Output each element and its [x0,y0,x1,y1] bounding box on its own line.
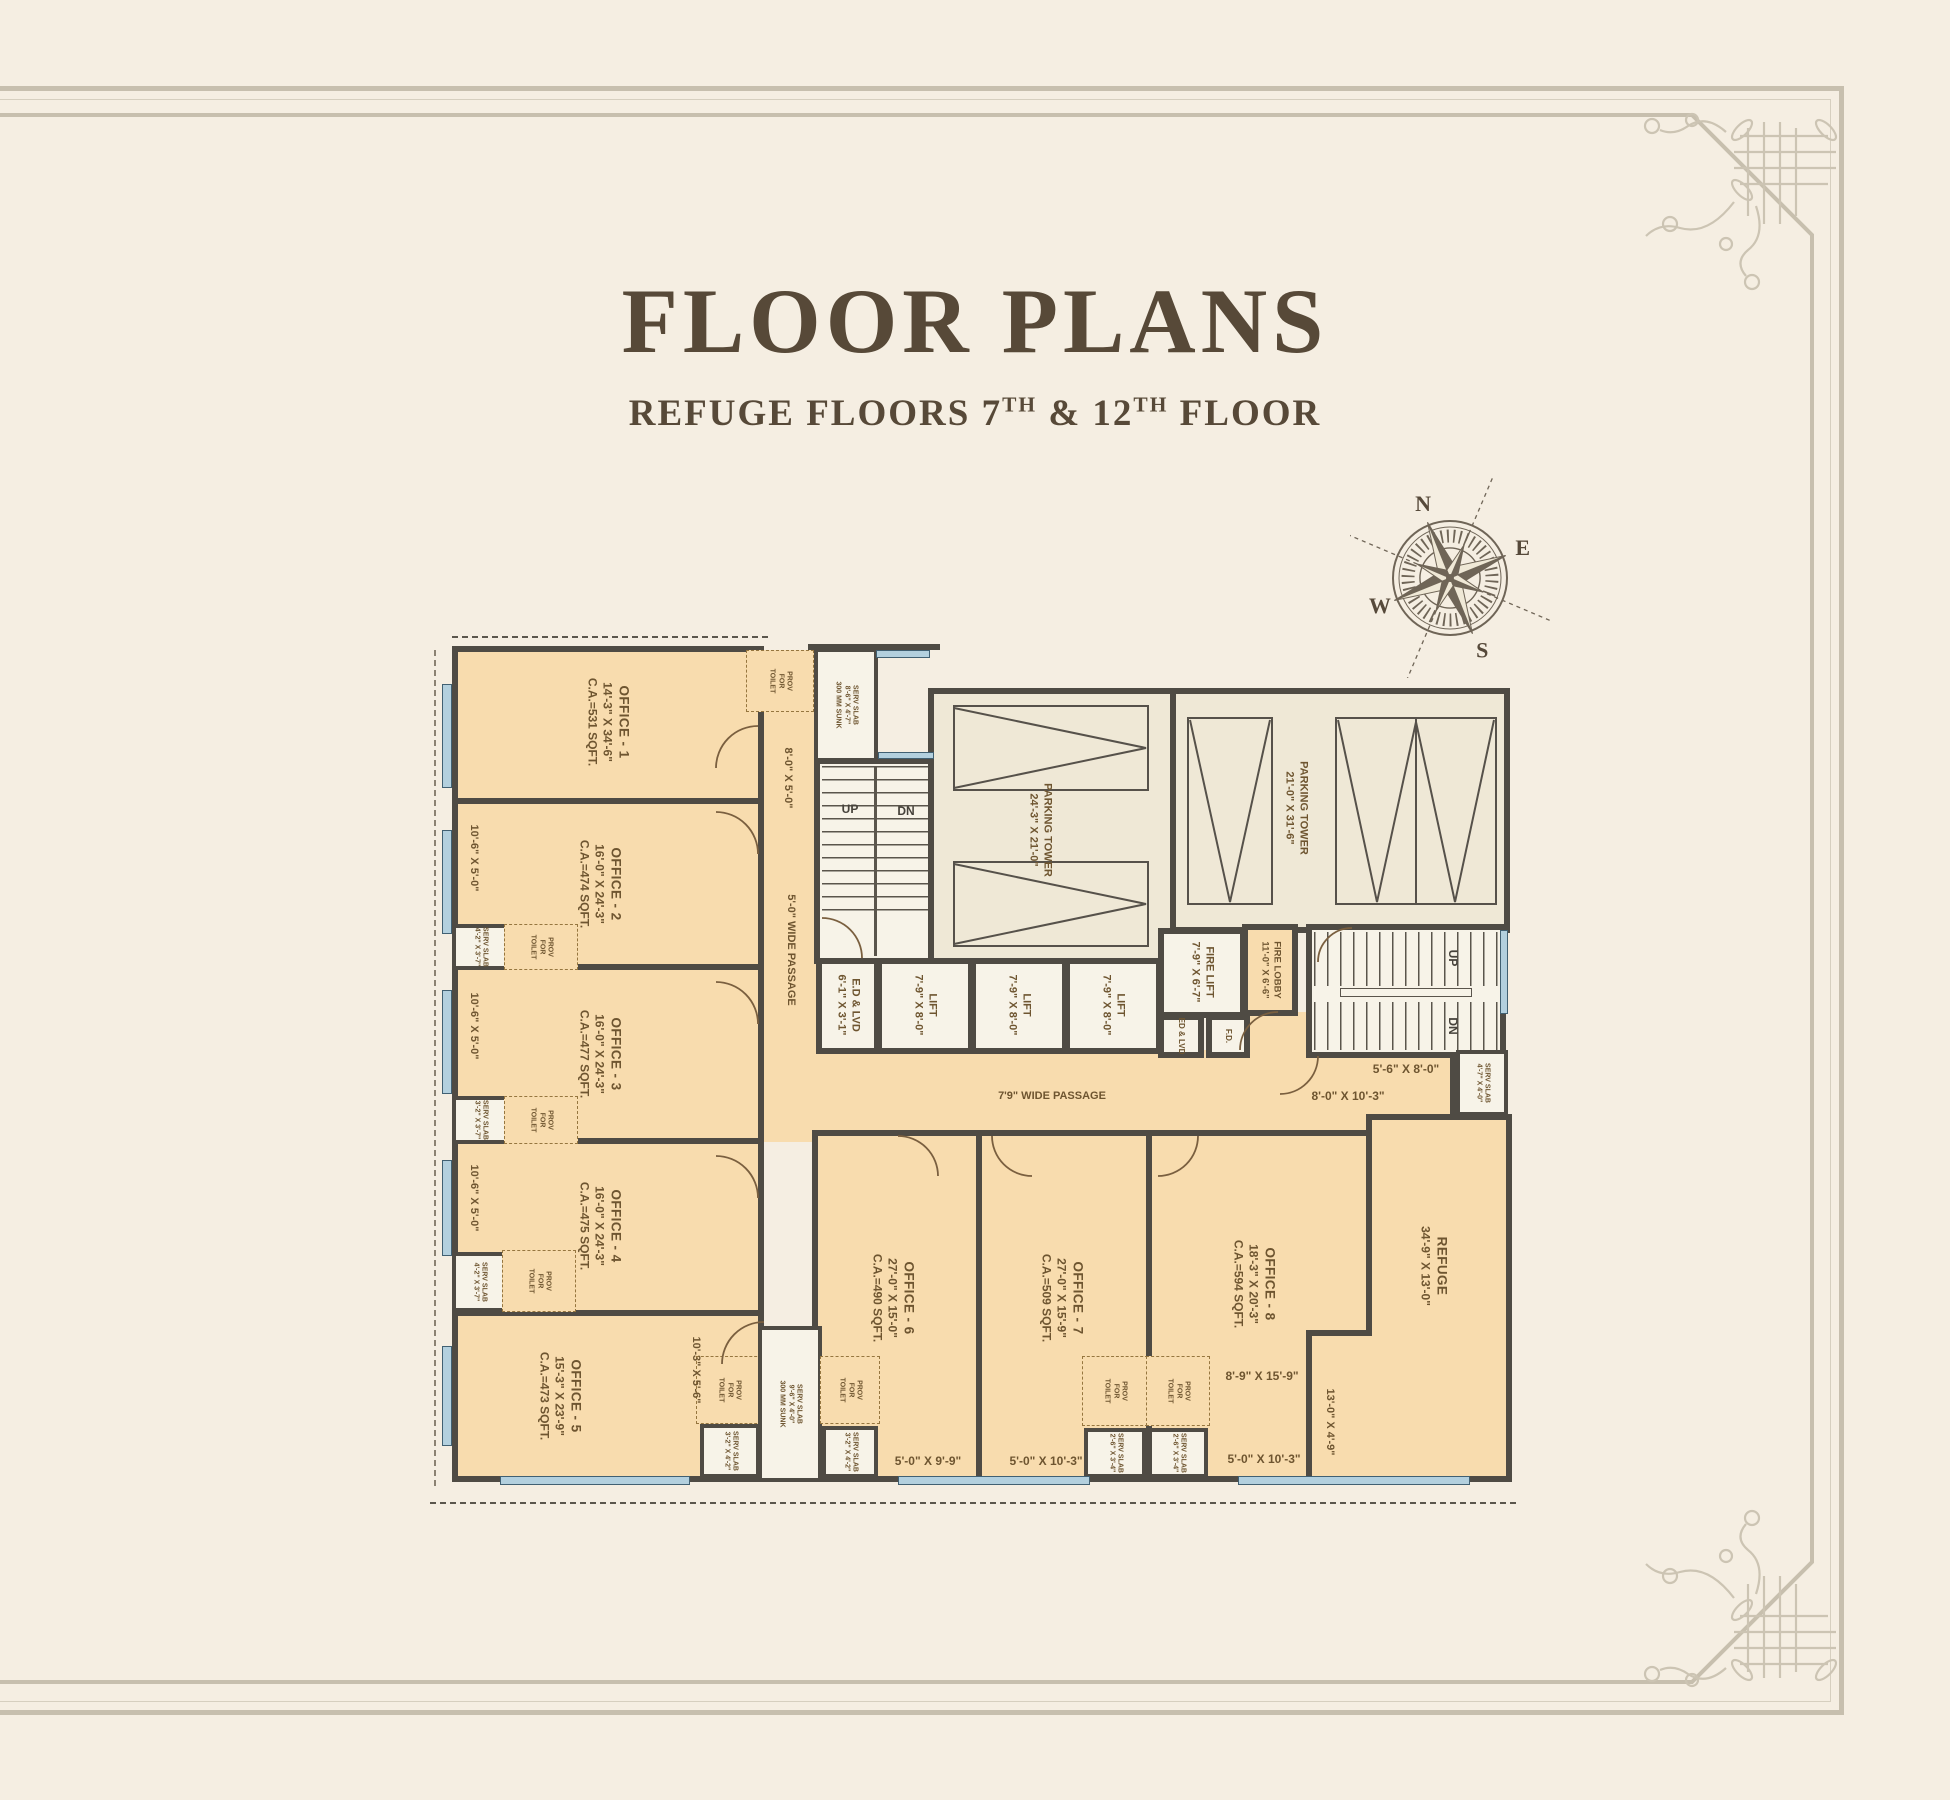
stair-up-label: UP [1444,950,1460,967]
label-line: 4'-2" X 3'-7" [472,927,480,967]
ed-lvd-small-label: ED & LVD [1176,1018,1186,1055]
dim-label: 5'-6" X 8'-0" [1373,1062,1439,1078]
serv-slab-box: SERV SLAB 8'-6" X 4'-7" 300 MM SUNK [814,648,878,762]
room-name: PARKING TOWER [1040,783,1054,877]
label-line: 3'-2" X 4'-2" [722,1428,730,1474]
room-name: LIFT [1113,993,1127,1016]
bay-dim-label: 10'-6" X 5'-0" [467,992,481,1059]
office-7-label: OFFICE - 7 27'-0" X 15'-9" C.A.=509 SQFT… [1038,1254,1087,1342]
room-name: OFFICE - 3 [607,1017,625,1090]
exterior-dashed-line-top [452,636,768,638]
window [876,650,930,658]
label-line: 300 MM SUNK [777,1339,785,1469]
window [442,990,452,1094]
room-name: OFFICE - 7 [1069,1261,1087,1334]
room-dims: 6'-1" X 3'-1" [834,975,848,1036]
label-line: 3'-2" X 4'-2" [842,1429,850,1475]
office-3-label: OFFICE - 3 16'-0" X 24'-3" C.A.=477 SQFT… [576,1010,625,1098]
prov-toilet-label: PROV FOR TOILET [1102,1374,1127,1408]
subtitle-text: & 12 [1037,393,1133,434]
label-line: 4'-2" X 3'-7" [471,1257,479,1307]
window [442,1346,452,1446]
room-name: FIRE LOBBY [1270,941,1282,999]
window [442,684,452,788]
label-line: 4'-7" X 4'-0" [1474,1055,1482,1111]
room-dims: 15'-3" X 23'-9" [551,1356,567,1436]
subtitle-text: REFUGE FLOORS 7 [629,393,1002,434]
serv-slab-label: SERV SLAB 4'-2" X 3'-7" [471,1257,488,1307]
site-boundary-dashed-line [430,1502,1516,1504]
stair-dn-label: DN [897,804,914,820]
room-area: C.A.=475 SQFT. [576,1182,592,1270]
room-dims: 14'-3" X 34'-6" [599,682,615,762]
serv-slab-label: SERV SLAB 4'-7" X 4'-0" [1474,1055,1491,1111]
room-dims: 7'-9" X 8'-0" [1099,975,1113,1036]
office-8-label: OFFICE - 8 18'-3" X 20'-3" C.A.=594 SQFT… [1230,1240,1279,1328]
room-name: OFFICE - 1 [615,685,633,758]
stair-treads [1314,932,1498,986]
room-dims: 16'-0" X 24'-3" [591,1014,607,1094]
serv-slab-label: SERV SLAB 3'-2" X 3'-7" [472,1100,489,1140]
room-area: C.A.=490 SQFT. [869,1254,885,1342]
prov-toilet-box: PROV FOR TOILET [1146,1356,1210,1426]
serv-slab-box: SERV SLAB 4'-2" X 3'-7" [452,1252,506,1312]
room-name: LIFT [925,993,939,1016]
serv-slab-box: SERV SLAB 9'-6" X 4'-0" 300 MM SUNK [758,1326,822,1482]
prov-toilet-box: PROV FOR TOILET [504,1096,578,1144]
lift-3-label: LIFT 7'-9" X 8'-0" [1099,975,1128,1036]
ed-lvd-label: E.D & LVD 6'-1" X 3'-1" [834,975,863,1036]
label-line: 3'-2" X 3'-7" [472,1100,480,1140]
lift-2-label: LIFT 7'-9" X 8'-0" [1005,975,1034,1036]
exterior-dashed-line [434,650,436,1486]
room-name: LIFT [1019,993,1033,1016]
room-area: C.A.=477 SQFT. [576,1010,592,1098]
compass-w: W [1369,593,1391,618]
stair-landing-rail [1340,988,1472,997]
office-1-label: OFFICE - 1 14'-3" X 34'-6" C.A.=531 SQFT… [584,678,633,766]
parking-tower-1-label: PARKING TOWER 24'-3" X 21'-0" [1026,783,1055,877]
prov-toilet-label: PROV FOR TOILET [526,1264,551,1298]
room-dims: 16'-0" X 24'-3" [591,844,607,924]
prov-toilet-label: PROV FOR TOILET [767,664,792,698]
dim-label: 13'-0" X 4'-9" [1323,1388,1337,1455]
brochure-page: { "header": { "title": "FLOOR PLANS", "s… [0,0,1950,1800]
subtitle-superscript: TH [1002,393,1037,417]
room-area: C.A.=531 SQFT. [584,678,600,766]
label-line: 2'-6" X 3'-4" [1107,1431,1115,1475]
corner-ornament-bottom-right-icon [1630,1506,1846,1702]
subtitle-text: FLOOR [1168,393,1321,434]
serv-slab-box: SERV SLAB 4'-2" X 3'-7" [452,924,508,970]
dim-label: 8'-0" X 10'-3" [1311,1089,1384,1105]
room-dims: 7'-9" X 8'-0" [911,975,925,1036]
label-line: SERV SLAB [850,1429,858,1475]
window [898,1476,1090,1485]
serv-slab-box: SERV SLAB 3'-2" X 4'-2" [700,1424,760,1478]
room-parking-tower-2 [1170,688,1510,933]
dim-label: 5'-0" X 9'-9" [895,1454,961,1470]
serv-slab-label: SERV SLAB 9'-6" X 4'-0" 300 MM SUNK [777,1339,802,1469]
serv-slab-box: SERV SLAB 2'-6" X 3'-4" [1148,1428,1208,1478]
window [442,1160,452,1256]
label-line: SERV SLAB [480,1100,488,1140]
room-dims: 18'-3" X 20'-3" [1245,1244,1261,1324]
corner-ornament-top-right-icon [1630,98,1846,294]
compass-e: E [1515,535,1530,560]
room-area: C.A.=509 SQFT. [1038,1254,1054,1342]
stair-divider [874,766,877,956]
label-line: SERV SLAB [730,1428,738,1474]
serv-slab-label: SERV SLAB 8'-6" X 4'-7" 300 MM SUNK [833,655,858,755]
prov-toilet-box: PROV FOR TOILET [504,924,578,970]
window [500,1476,690,1485]
room-dims: 34'-9" X 13'-0" [1417,1226,1433,1306]
dim-label: 5'-0" X 10'-3" [1227,1452,1300,1468]
parking-tower-2-label: PARKING TOWER 21'-0" X 31'-6" [1282,761,1311,855]
page-title: FLOOR PLANS [0,268,1950,374]
room-name: OFFICE - 5 [567,1359,585,1432]
office-4-label: OFFICE - 4 16'-0" X 24'-3" C.A.=475 SQFT… [576,1182,625,1270]
room-area: C.A.=594 SQFT. [1230,1240,1246,1328]
prov-toilet-label: PROV FOR TOILET [837,1373,862,1407]
label-line: 300 MM SUNK [833,655,841,755]
prov-toilet-label: PROV FOR TOILET [528,930,553,964]
room-dims: 7'-9" X 6'-7" [1188,942,1202,1003]
label-line: SERV SLAB [479,1257,487,1307]
car-stacker-symbols-icon [1176,694,1504,927]
compass-s: S [1476,638,1488,663]
room-name: OFFICE - 4 [607,1189,625,1262]
compass-n: N [1415,491,1431,516]
dim-label: 8'-9" X 15'-9" [1225,1369,1298,1385]
subtitle-superscript: TH [1133,393,1168,417]
serv-slab-box: SERV SLAB 4'-7" X 4'-0" [1456,1050,1508,1116]
window [1238,1476,1470,1485]
office-6-label: OFFICE - 6 27'-0" X 15'-0" C.A.=490 SQFT… [869,1254,918,1342]
room-name: OFFICE - 8 [1261,1247,1279,1320]
label-line: SERV SLAB [1178,1431,1186,1475]
fire-lobby-label: FIRE LOBBY 11'-0" X 6'-6" [1258,941,1283,999]
stair-up-label: UP [842,802,859,818]
dim-label: 5'-0" X 10'-3" [1009,1454,1082,1470]
serv-slab-label: SERV SLAB 4'-2" X 3'-7" [472,927,489,967]
room-dims: 27'-0" X 15'-0" [884,1258,900,1338]
stair-treads [1314,1002,1498,1050]
prov-toilet-box: PROV FOR TOILET [820,1356,880,1424]
room-dims: 21'-0" X 31'-6" [1282,771,1296,844]
bay-dim-label: 10'-3" X 5'-6" [689,1336,703,1403]
room-name: PARKING TOWER [1296,761,1310,855]
room-dims: 11'-0" X 6'-6" [1258,941,1270,998]
room-dims: 24'-3" X 21'-0" [1026,793,1040,866]
prov-toilet-box: PROV FOR TOILET [502,1250,576,1312]
passage-text: 7'9" WIDE PASSAGE [998,1089,1106,1103]
compass-rose-icon: N E S W [1350,478,1550,678]
label-line: SERV SLAB [1482,1055,1490,1111]
room-dims: 27'-0" X 15'-9" [1053,1258,1069,1338]
room-name: OFFICE - 6 [900,1261,918,1334]
page-subtitle: REFUGE FLOORS 7TH & 12TH FLOOR [0,392,1950,435]
window [878,752,934,759]
label-line: 9'-6" X 4'-0" [786,1339,794,1469]
window [442,830,452,934]
bay-dim-label: 10'-6" X 5'-0" [467,1164,481,1231]
office-2-label: OFFICE - 2 16'-0" X 24'-3" C.A.=474 SQFT… [576,840,625,928]
bay-dim-label: 8'-0" X 5'-0" [781,748,795,809]
office-5-label: OFFICE - 5 15'-3" X 23'-9" C.A.=473 SQFT… [536,1352,585,1440]
serv-slab-box: SERV SLAB 3'-2" X 3'-7" [452,1096,508,1144]
prov-toilet-box: PROV FOR TOILET [746,650,814,712]
serv-slab-box: SERV SLAB 3'-2" X 4'-2" [822,1426,878,1478]
room-dims: 16'-0" X 24'-3" [591,1186,607,1266]
room-dims: 7'-9" X 8'-0" [1005,975,1019,1036]
bay-dim-label: 10'-6" X 5'-0" [467,824,481,891]
lift-1-label: LIFT 7'-9" X 8'-0" [911,975,940,1036]
serv-slab-label: SERV SLAB 3'-2" X 4'-2" [842,1429,859,1475]
room-area: C.A.=473 SQFT. [536,1352,552,1440]
label-line: SERV SLAB [1115,1431,1123,1475]
stair-dn-label: DN [1444,1017,1460,1034]
refuge-label: REFUGE 34'-9" X 13'-0" [1417,1226,1450,1306]
label-line: 2'-6" X 3'-4" [1170,1431,1178,1475]
serv-slab-label: SERV SLAB 2'-6" X 3'-4" [1170,1431,1187,1475]
label-line: SERV SLAB [794,1339,802,1469]
passage-text: 5'-0" WIDE PASSAGE [784,894,798,1006]
prov-toilet-label: PROV FOR TOILET [528,1103,553,1137]
refuge-extension [1306,1330,1372,1482]
room-name: REFUGE [1433,1237,1451,1296]
passage-vertical-label: 5'-0" WIDE PASSAGE [784,894,798,1006]
serv-slab-box: SERV SLAB 2'-6" X 3'-4" [1084,1428,1146,1478]
prov-toilet-box: PROV FOR TOILET [696,1356,762,1424]
serv-slab-label: SERV SLAB 2'-6" X 3'-4" [1107,1431,1124,1475]
fire-lift-label: FIRE LIFT 7'-9" X 6'-7" [1188,942,1217,1003]
room-name: E.D & LVD [848,978,862,1032]
passage-horizontal-label: 7'9" WIDE PASSAGE [998,1089,1106,1103]
window [1500,930,1508,1014]
serv-slab-label: SERV SLAB 3'-2" X 4'-2" [722,1428,739,1474]
label-line: 8'-6" X 4'-7" [842,655,850,755]
room-name: FIRE LIFT [1202,946,1216,997]
fd-label: F.D. [1223,1029,1233,1043]
prov-toilet-label: PROV FOR TOILET [1165,1374,1190,1408]
prov-toilet-box: PROV FOR TOILET [1082,1356,1148,1426]
room-name: OFFICE - 2 [607,847,625,920]
room-area: C.A.=474 SQFT. [576,840,592,928]
prov-toilet-label: PROV FOR TOILET [716,1373,741,1407]
label-line: SERV SLAB [850,655,858,755]
label-line: SERV SLAB [480,927,488,967]
